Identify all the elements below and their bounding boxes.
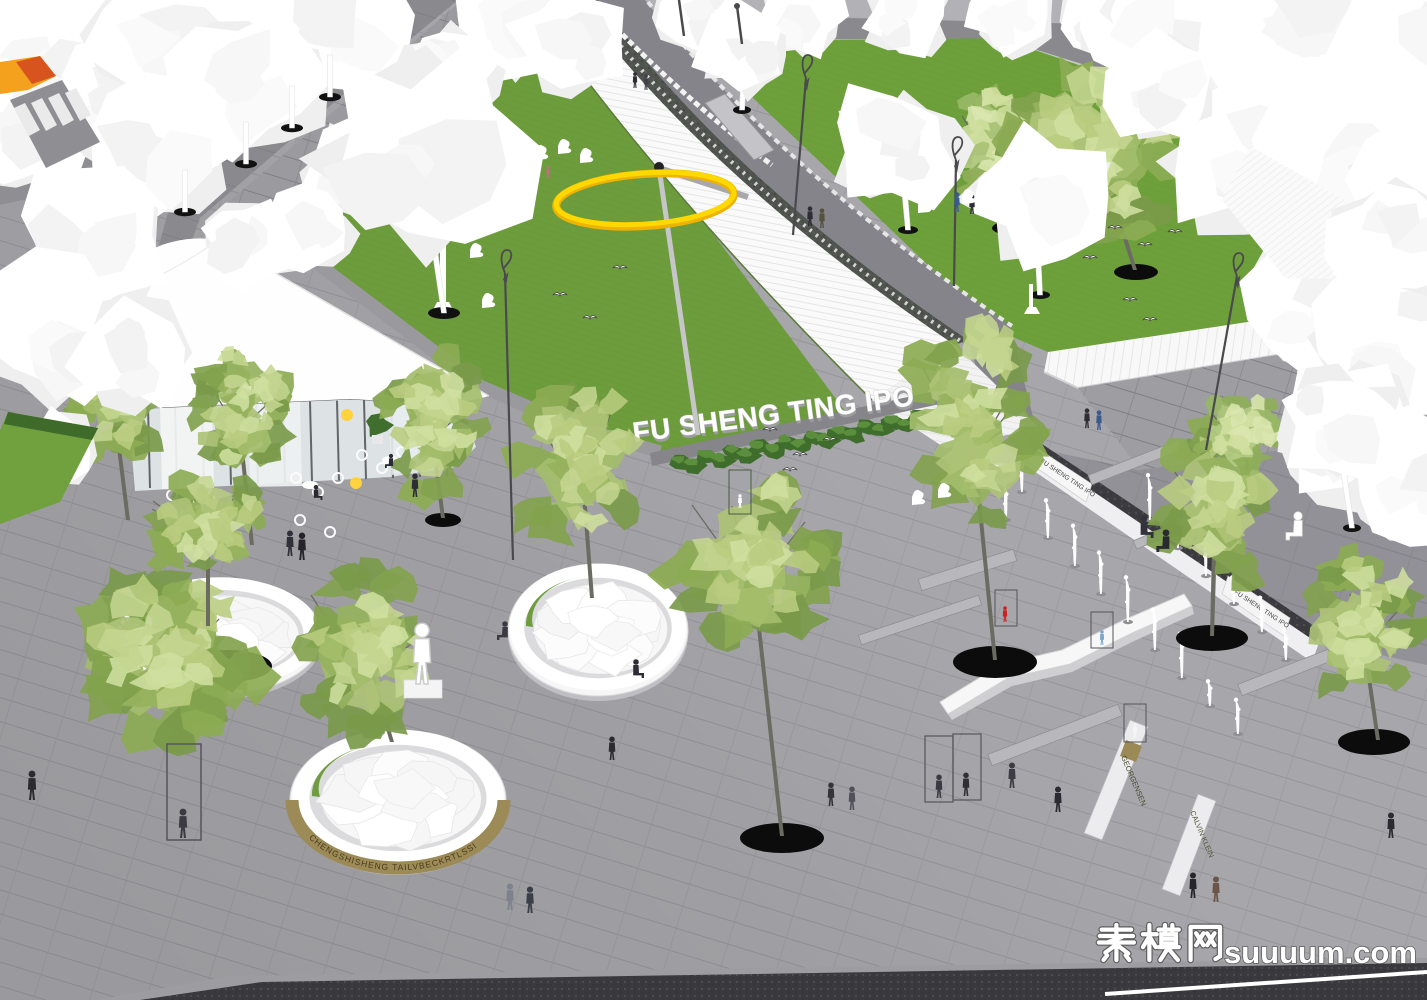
- svg-text:suuuum.com: suuuum.com: [1224, 935, 1417, 970]
